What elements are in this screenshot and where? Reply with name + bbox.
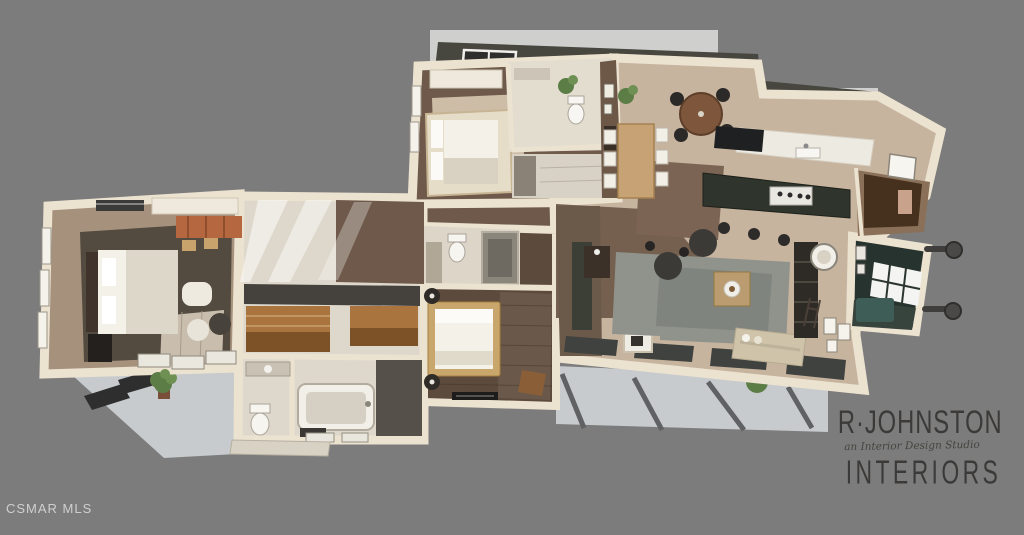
dining-chair: [604, 174, 616, 188]
master-chair: [187, 319, 209, 341]
pillow: [742, 334, 750, 342]
vanity: [426, 242, 442, 284]
shower-floor: [376, 360, 422, 436]
studio-logo: R·JOHNSTON an Interior Design Studio INT…: [834, 407, 990, 483]
papasan-cushion: [817, 250, 831, 264]
closet-unit: [514, 156, 536, 196]
towel: [898, 190, 912, 214]
kitchen-sink: [796, 148, 820, 158]
bathtub-basin: [306, 392, 366, 424]
den-daybed: [856, 298, 894, 322]
pillow: [102, 296, 116, 324]
armchair: [689, 229, 717, 257]
sink: [264, 365, 272, 373]
faucet: [365, 401, 371, 407]
accent-chair: [518, 370, 546, 396]
dining-chair: [604, 130, 616, 144]
window: [42, 228, 51, 264]
window: [410, 122, 419, 152]
decor: [729, 286, 735, 292]
pillow: [431, 152, 443, 180]
side-table: [679, 247, 689, 257]
burner: [778, 192, 783, 197]
window: [306, 433, 334, 442]
dining-chair: [656, 128, 668, 142]
watermark-text: CSMAR MLS: [6, 501, 92, 516]
decor: [430, 380, 435, 385]
armchair: [654, 252, 682, 280]
toilet-tank: [568, 96, 584, 104]
throw-blanket: [435, 351, 493, 365]
art-frame: [824, 318, 836, 334]
logo-name: R·JOHNSTON: [838, 407, 986, 440]
window: [40, 270, 49, 306]
decor: [594, 249, 600, 255]
cafe-chair: [674, 128, 688, 142]
art-frame: [838, 324, 850, 340]
faucet: [804, 144, 809, 149]
shower-basin: [488, 239, 512, 277]
window: [888, 154, 916, 180]
nook-rug: [176, 216, 242, 238]
decor: [430, 294, 435, 299]
bedroom2-closet: [430, 70, 502, 88]
wall: [424, 286, 556, 288]
side-table: [645, 241, 655, 251]
toilet-tank: [448, 234, 466, 242]
master-bed-duvet: [126, 250, 178, 334]
tv-console: [88, 334, 112, 362]
fireplace-vent: [631, 336, 643, 346]
dining-chair: [604, 152, 616, 166]
wall: [242, 356, 422, 358]
vanity: [514, 68, 550, 80]
toilet: [568, 104, 584, 124]
window: [412, 86, 421, 116]
pillow-band: [435, 309, 493, 323]
burner: [798, 194, 803, 199]
window: [342, 433, 368, 442]
toilet-tank: [250, 404, 270, 413]
pillow: [102, 258, 116, 286]
french-door: [138, 354, 170, 367]
dining-table: [618, 124, 654, 198]
plant: [628, 85, 638, 95]
closet-back-wall: [244, 284, 420, 306]
master-closet: [152, 198, 238, 214]
art-frame: [856, 246, 866, 260]
master-ottoman: [209, 313, 231, 335]
wall-art: [604, 104, 612, 114]
window: [38, 312, 47, 348]
porch-step: [230, 440, 330, 456]
master-bed-headboard: [86, 252, 98, 332]
logo-subtitle: INTERIORS: [846, 456, 979, 490]
burner: [788, 193, 793, 198]
logo-tagline: an Interior Design Studio: [834, 440, 990, 453]
clerestory-window: [96, 200, 144, 211]
wardrobe-front: [246, 332, 330, 352]
umbrella-top: [945, 303, 961, 319]
wardrobe-front: [350, 328, 418, 346]
burner: [806, 195, 811, 200]
master-armchair: [182, 282, 212, 306]
umbrella-top: [946, 242, 962, 258]
wall-art: [604, 84, 614, 98]
art-frame: [857, 264, 865, 274]
bar-stool: [748, 228, 760, 240]
nook-chair: [182, 240, 196, 251]
floor-plan-render: CSMAR MLS R·JOHNSTON an Interior Design …: [0, 0, 1024, 535]
french-door: [206, 351, 236, 364]
dining-chair: [656, 172, 668, 186]
french-door: [172, 356, 204, 369]
nook-chair: [204, 238, 218, 249]
plant: [160, 369, 170, 379]
bar-stool: [778, 234, 790, 246]
toilet: [251, 413, 269, 435]
cafe-chair: [716, 88, 730, 102]
toilet: [449, 242, 465, 262]
pillow: [754, 336, 762, 344]
pillow: [431, 120, 443, 148]
dining-chair: [656, 150, 668, 164]
bedroom2-duvet: [444, 158, 498, 184]
art-frame: [827, 340, 837, 352]
pendant-light: [698, 111, 704, 117]
plant: [568, 75, 578, 85]
bar-stool: [718, 222, 730, 234]
cooktop: [714, 126, 764, 152]
